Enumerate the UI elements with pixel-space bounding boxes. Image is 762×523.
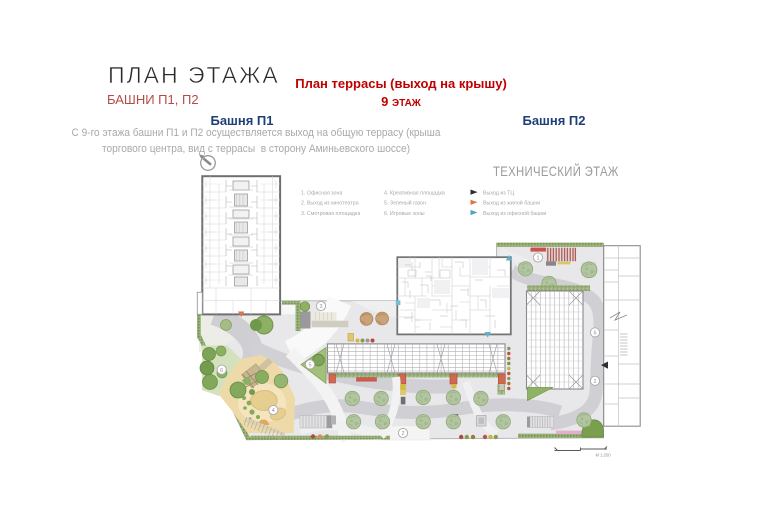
svg-text:5: 5 <box>308 363 311 369</box>
svg-text:2: 2 <box>401 431 404 437</box>
svg-text:2: 2 <box>593 379 596 385</box>
svg-text:6. Игровые зоны: 6. Игровые зоны <box>384 211 425 217</box>
svg-text:1: 1 <box>536 256 539 262</box>
svg-text:Выход из ТЦ: Выход из ТЦ <box>483 191 514 197</box>
svg-text:5. Зеленый газон: 5. Зеленый газон <box>384 200 426 207</box>
svg-text:3. Смотровая площадка: 3. Смотровая площадка <box>301 211 360 217</box>
svg-text:3: 3 <box>319 304 322 310</box>
svg-text:6: 6 <box>593 331 596 337</box>
svg-text:Выход из жилой башни: Выход из жилой башни <box>483 200 540 207</box>
svg-text:1. Офисная зона: 1. Офисная зона <box>301 191 342 197</box>
svg-text:2. Выход из кинотеатра: 2. Выход из кинотеатра <box>301 201 359 207</box>
svg-text:М 1:200: М 1:200 <box>596 452 612 457</box>
svg-text:6: 6 <box>220 368 223 374</box>
svg-text:4: 4 <box>272 408 275 414</box>
svg-text:4. Креативная площадка: 4. Креативная площадка <box>384 191 445 197</box>
svg-text:Выход из офисной башни: Выход из офисной башни <box>483 210 546 217</box>
